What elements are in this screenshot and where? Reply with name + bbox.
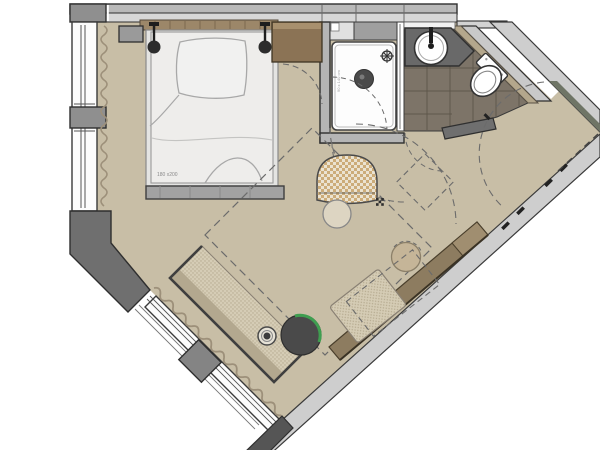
svg-text:180 x200: 180 x200 (157, 172, 178, 178)
svg-text:90 x 140 cm: 90 x 140 cm (336, 70, 341, 92)
